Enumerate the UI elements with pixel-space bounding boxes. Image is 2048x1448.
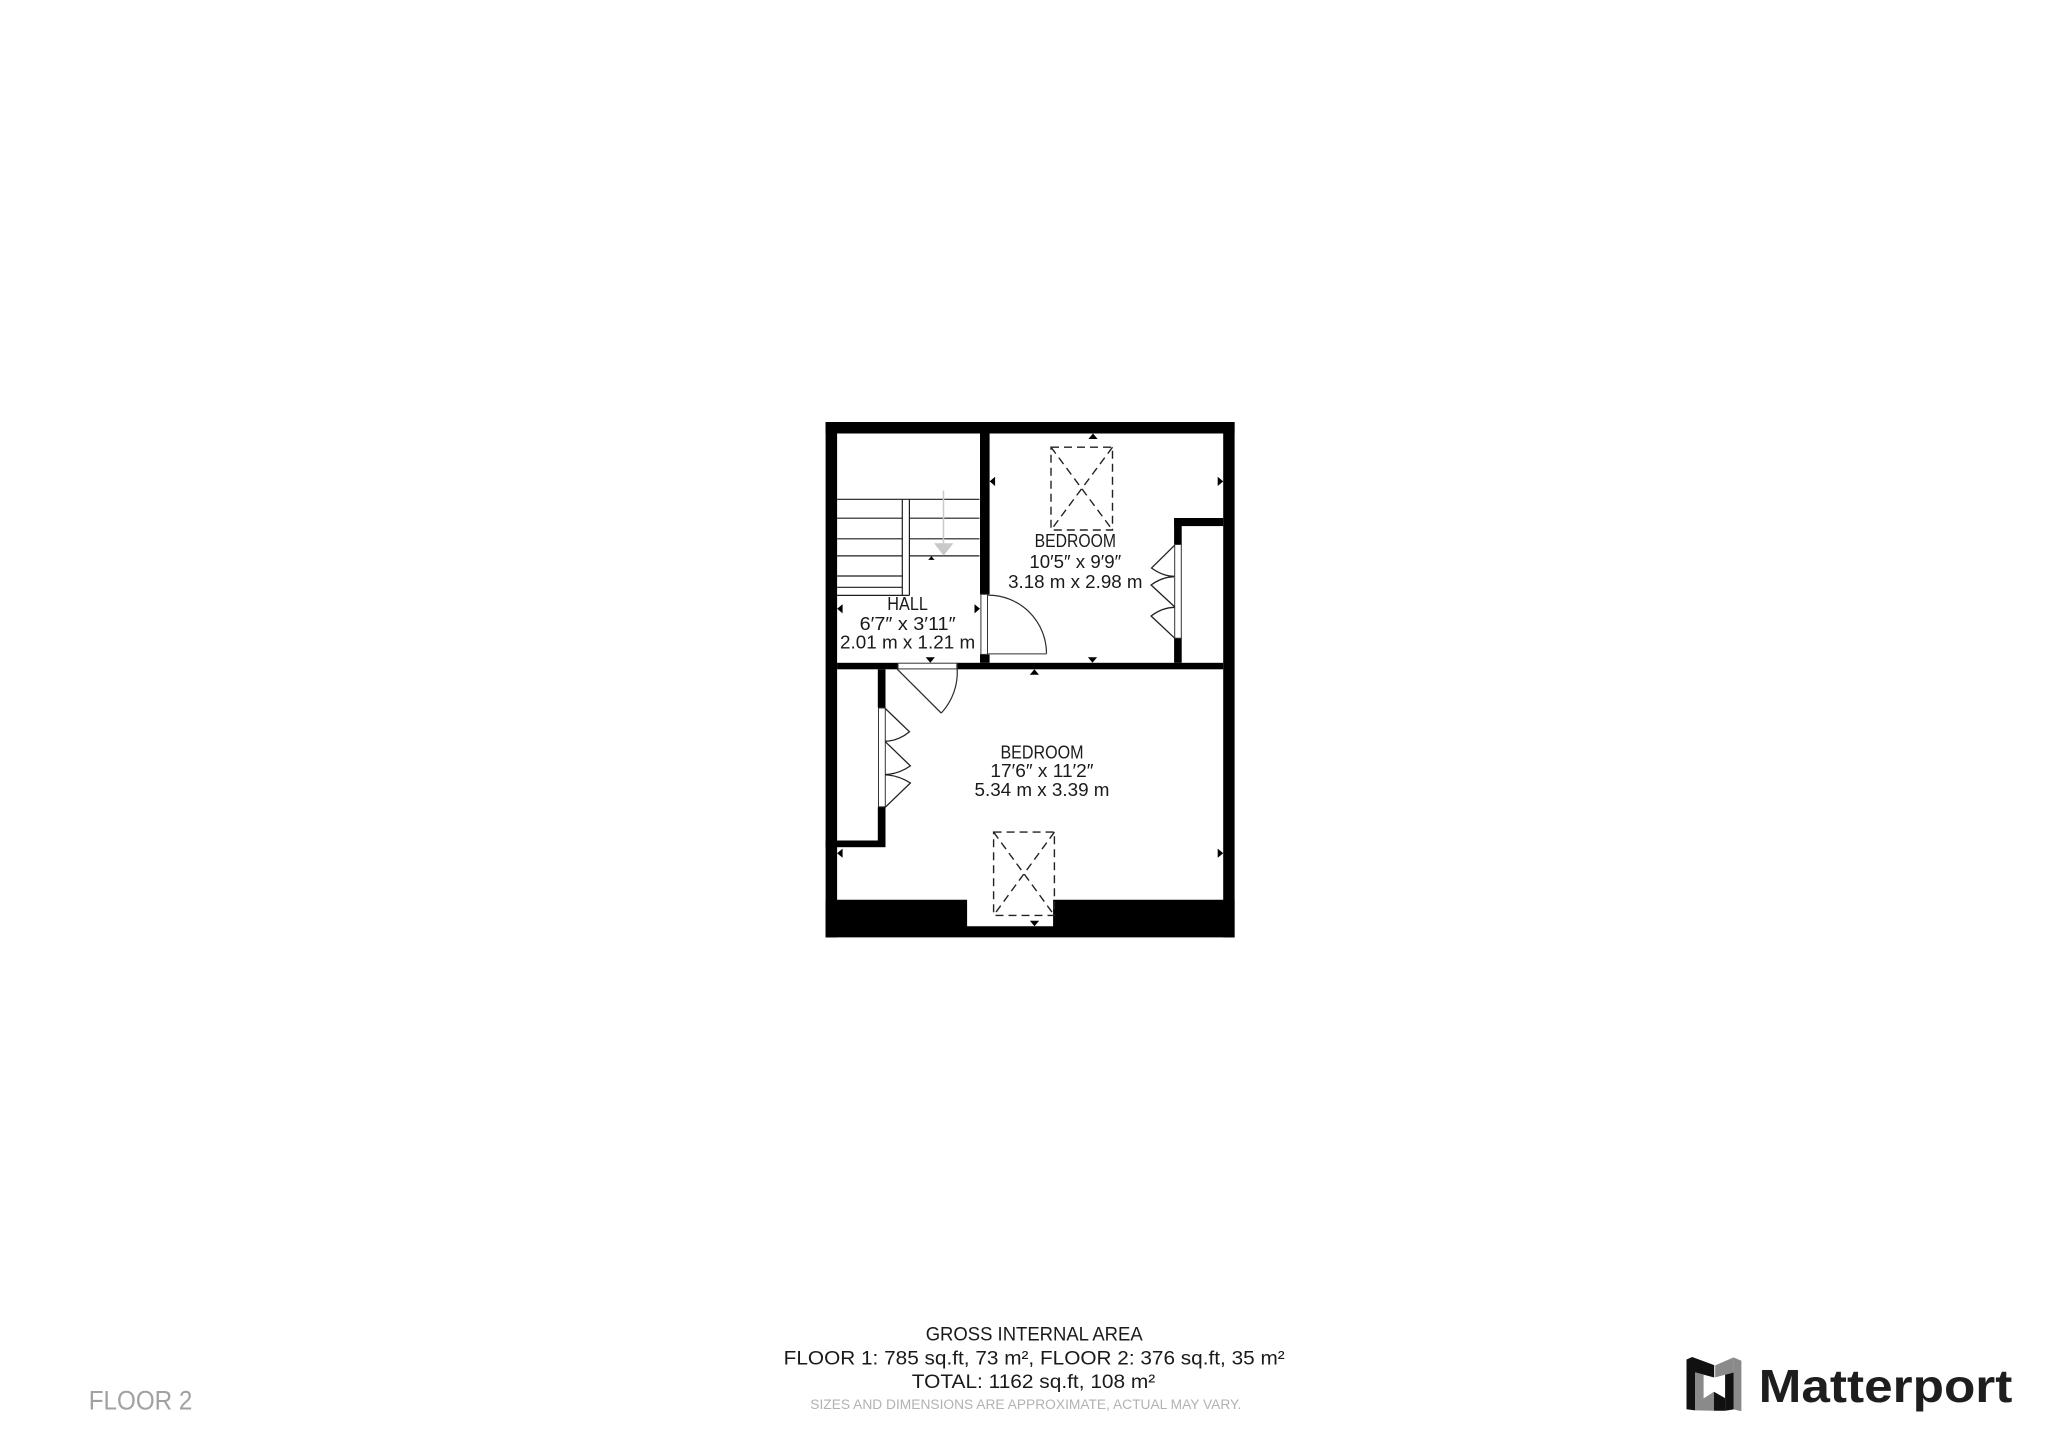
svg-text:Matterport: Matterport	[1759, 1360, 2013, 1412]
svg-text:2.01 m x 1.21 m: 2.01 m x 1.21 m	[840, 633, 975, 653]
svg-text:6′7″ x 3′11″: 6′7″ x 3′11″	[860, 614, 957, 634]
svg-text:SIZES AND DIMENSIONS ARE APPRO: SIZES AND DIMENSIONS ARE APPROXIMATE, AC…	[810, 1397, 1241, 1412]
svg-text:17′6″ x 11′2″: 17′6″ x 11′2″	[990, 761, 1094, 781]
svg-text:BEDROOM: BEDROOM	[1035, 531, 1116, 551]
svg-text:10′5″ x 9′9″: 10′5″ x 9′9″	[1029, 552, 1121, 572]
svg-text:TOTAL: 1162 sq.ft, 108 m²: TOTAL: 1162 sq.ft, 108 m²	[912, 1372, 1156, 1393]
svg-text:HALL: HALL	[887, 594, 928, 614]
svg-text:FLOOR 1: 785 sq.ft, 73 m², FLO: FLOOR 1: 785 sq.ft, 73 m², FLOOR 2: 376 …	[784, 1348, 1285, 1369]
svg-text:5.34 m x 3.39 m: 5.34 m x 3.39 m	[975, 780, 1110, 800]
svg-text:GROSS INTERNAL AREA: GROSS INTERNAL AREA	[926, 1325, 1143, 1346]
svg-text:FLOOR 2: FLOOR 2	[89, 1386, 193, 1416]
svg-text:BEDROOM: BEDROOM	[1000, 742, 1083, 762]
svg-text:3.18 m x 2.98 m: 3.18 m x 2.98 m	[1008, 572, 1142, 592]
